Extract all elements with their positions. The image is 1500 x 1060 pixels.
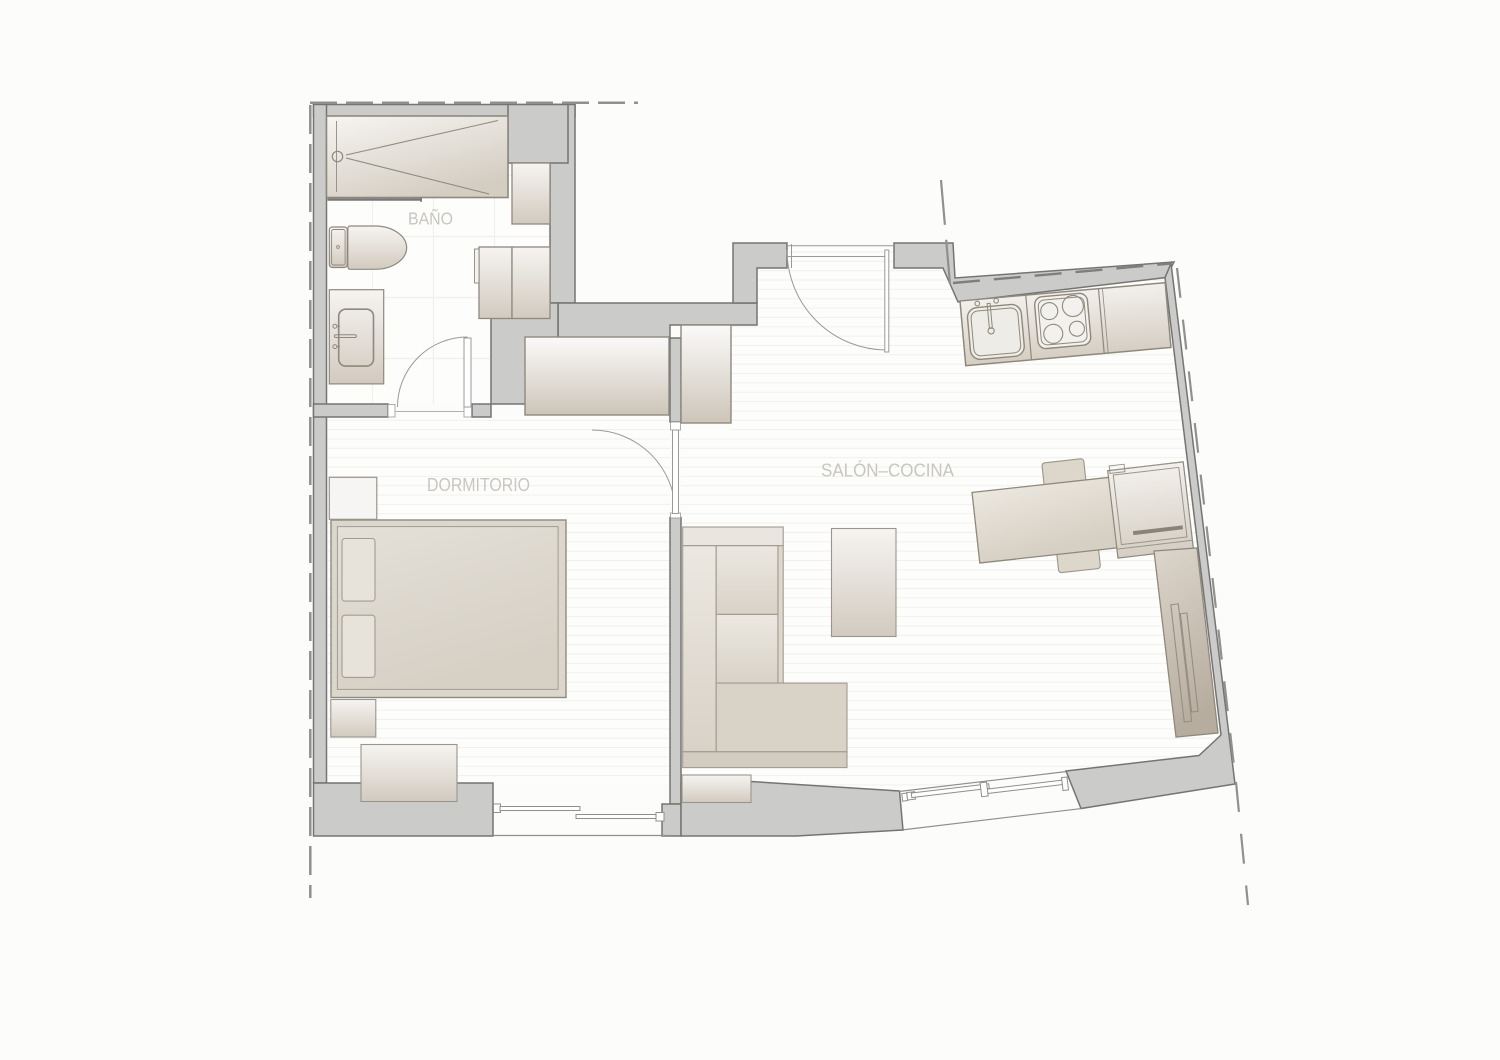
svg-text:DORMITORIO: DORMITORIO [427, 474, 530, 495]
svg-text:BAÑO: BAÑO [408, 208, 453, 229]
svg-text:SALÓN–COCINA: SALÓN–COCINA [821, 460, 955, 481]
